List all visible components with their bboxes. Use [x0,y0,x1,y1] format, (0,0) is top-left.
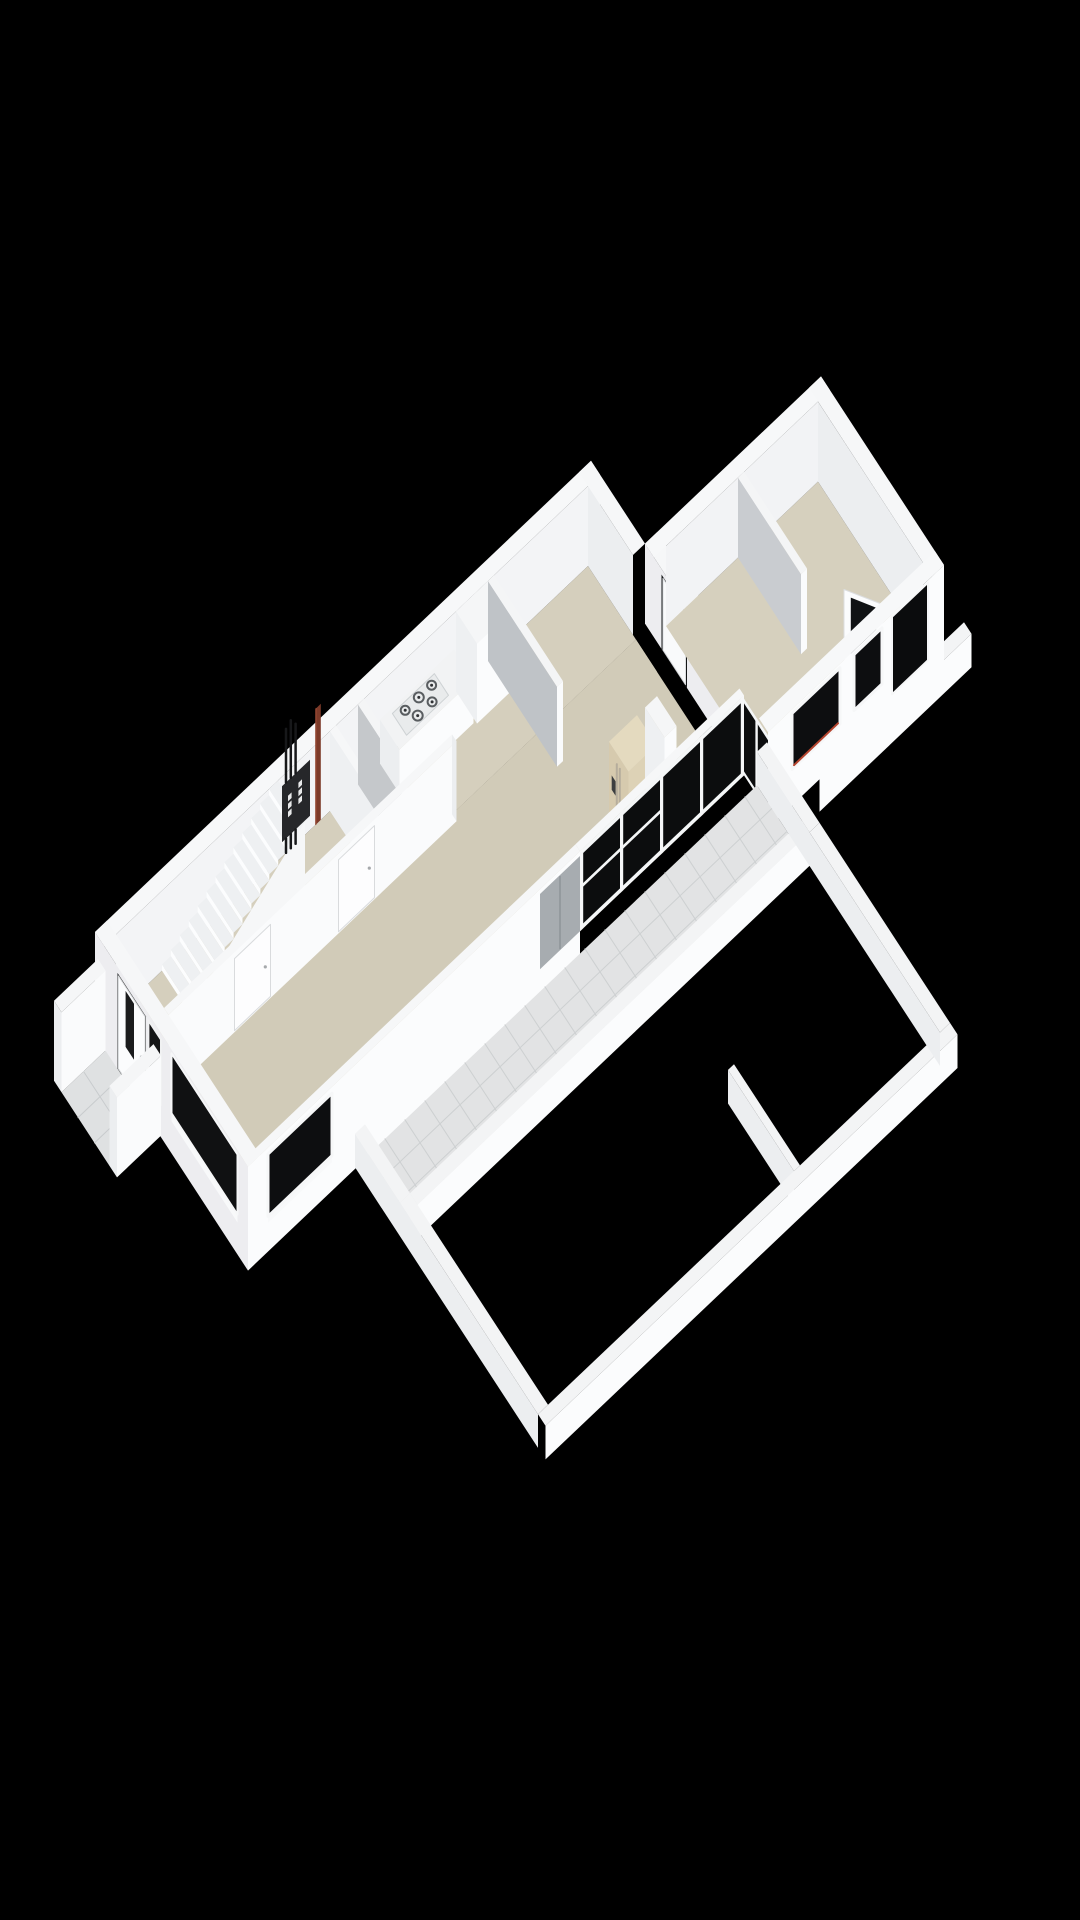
garden-right-wall-face [810,832,941,1066]
garden-far-wall-top [538,1023,958,1426]
hob-burner-cap [417,696,420,699]
conservatory-post [580,848,583,931]
annex-partition-end [801,569,807,655]
porch-left-wall-end [54,1001,62,1093]
conservatory-post [620,810,623,893]
kitchen-partition-end [557,681,563,767]
hall-living-wall-end [452,734,457,821]
floorplan-screenshot [0,0,1080,1920]
garden-left-wall-top [400,1193,548,1414]
hob-burner-cap [431,700,434,703]
garden-right-wall-top [810,823,951,1033]
porch-right-wall-end [110,1086,118,1178]
conservatory-post [660,772,663,855]
garden-left-wall-face [400,1203,538,1448]
door-handle [368,867,371,870]
conservatory-post [700,734,703,817]
hob-burner-cap [416,714,419,717]
hob-burner-cap [430,684,433,687]
floorplan-3d-view [0,0,1080,1920]
door-handle [264,965,267,968]
hob-burner-cap [404,709,407,712]
conservatory-post [741,695,744,778]
